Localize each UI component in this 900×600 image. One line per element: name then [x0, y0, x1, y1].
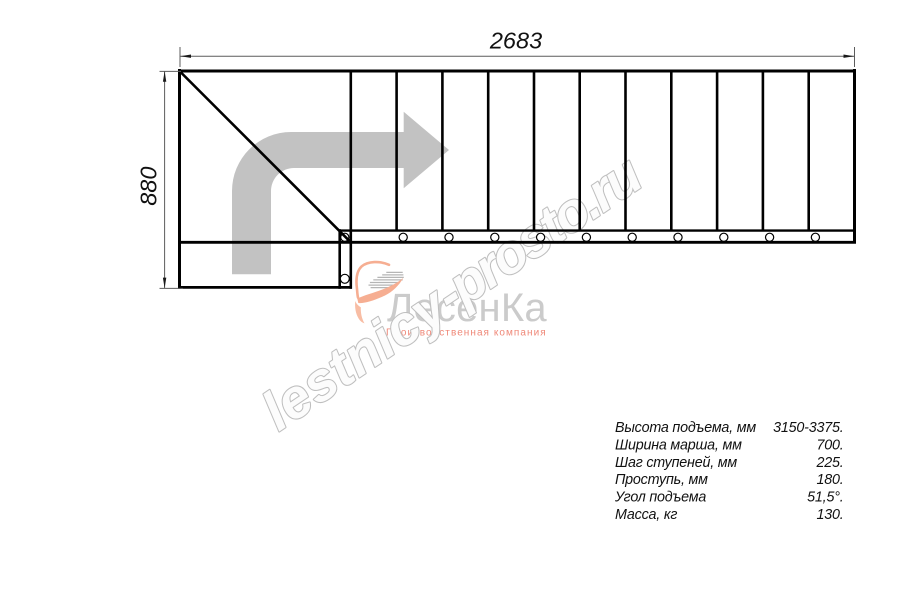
svg-text:lestnicy-prosto.ru: lestnicy-prosto.ru [250, 143, 652, 442]
svg-text:Шаг ступеней, мм: Шаг ступеней, мм [615, 455, 737, 471]
svg-text:Масса, кг: Масса, кг [615, 507, 677, 523]
svg-text:225.: 225. [815, 455, 843, 471]
svg-text:2683: 2683 [489, 28, 542, 54]
svg-text:180.: 180. [816, 472, 843, 488]
svg-text:Угол подъема: Угол подъема [614, 490, 706, 506]
svg-text:Высота подъема, мм: Высота подъема, мм [615, 420, 756, 436]
svg-text:3150-3375.: 3150-3375. [773, 420, 843, 436]
svg-text:700.: 700. [816, 437, 843, 453]
svg-text:Ширина марша, мм: Ширина марша, мм [615, 437, 742, 453]
svg-text:Проступь, мм: Проступь, мм [615, 472, 708, 488]
svg-text:880: 880 [135, 167, 161, 206]
svg-text:51,5°.: 51,5°. [807, 490, 843, 506]
svg-text:130.: 130. [816, 507, 843, 523]
